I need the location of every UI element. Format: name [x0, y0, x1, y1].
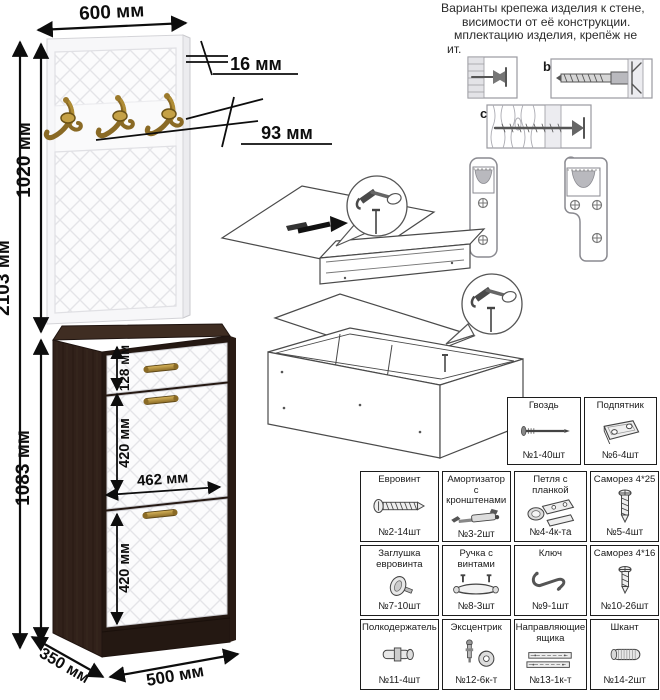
wall-mount-note: Варианты крепежа изделия к стене, висимо… [441, 2, 660, 56]
dim-front-width: 462 мм [136, 469, 188, 490]
hardware-table-top: Гвоздь №1-40шт Подпятник №6-4шт [507, 397, 657, 465]
part-name: Ключ [539, 549, 562, 560]
dim-flap-lower: 420 мм [117, 543, 133, 593]
part-cell-hinge: Петля с планкой №4-4к-та [514, 471, 588, 542]
nail-icon [516, 419, 572, 443]
part-name: Саморез 4*25 [594, 475, 656, 486]
part-qty: №6-4шт [602, 450, 639, 461]
dim-width-top: 600 мм [79, 0, 145, 24]
wall-fixing-variants: b c [468, 57, 652, 148]
part-name: Шкант [610, 623, 638, 634]
part-cell-screw-4x25: Саморез 4*25 №5-4шт [590, 471, 659, 542]
part-name: Ручка с винтами [444, 549, 509, 570]
part-name: Гвоздь [529, 401, 559, 412]
part-name: Подпятник [597, 401, 644, 412]
part-qty: №13-1к-т [529, 675, 571, 686]
dim-hook-offset: 93 мм [261, 123, 313, 143]
screw-4x25-icon [610, 489, 640, 523]
part-name: Саморез 4*16 [594, 549, 656, 560]
part-cell-cap: Заглушка евровинта №7-10шт [360, 545, 439, 616]
hinge-icon [521, 497, 579, 527]
part-name: Евровинт [378, 475, 420, 486]
dim-flap-upper: 420 мм [117, 418, 133, 468]
part-name: Эксцентрик [451, 623, 502, 634]
part-qty: №5-4шт [606, 527, 643, 538]
variant-c-label: c [480, 106, 487, 121]
cam-lock-icon [449, 638, 503, 670]
note-line: мплектацию изделия, крепёж не [441, 29, 660, 43]
gas-lift-icon [447, 507, 505, 529]
drawer-slides-icon [521, 648, 579, 672]
part-qty: №11-4шт [379, 675, 421, 686]
note-line: Варианты крепежа изделия к стене, [441, 2, 660, 16]
note-line: ит. [441, 43, 660, 57]
part-qty: №3-2шт [458, 529, 495, 540]
dim-total-height: 2103 мм [0, 240, 14, 316]
dim-cabinet-width: 500 мм [145, 661, 206, 690]
dim-panel-height: 1020 мм [14, 122, 35, 198]
hardware-table-main: Евровинт №2-14шт Амортизатор с кронштена… [360, 471, 659, 690]
part-cell-cam-lock: Эксцентрик №12-6к-т [442, 619, 511, 690]
euroscrew-icon [370, 493, 428, 519]
part-qty: №7-10шт [378, 601, 420, 612]
part-cell-handle: Ручка с винтами №8-3шт [442, 545, 511, 616]
part-qty: №4-4к-та [529, 527, 571, 538]
part-name: Петля с планкой [516, 475, 586, 496]
part-name: Направляющие ящика [516, 623, 586, 644]
glide-icon [592, 418, 648, 444]
part-name: Амортизатор с кронштенами [444, 475, 509, 507]
part-qty: №1-40шт [523, 450, 565, 461]
note-line: висимости от её конструкции. [441, 16, 660, 30]
part-cell-gas-lift: Амортизатор с кронштенами №3-2шт [442, 471, 511, 542]
part-cell-dowel: Шкант №14-2шт [590, 619, 659, 690]
variant-b-label: b [543, 59, 551, 74]
part-cell-glide: Подпятник №6-4шт [584, 397, 658, 465]
part-qty: №8-3шт [458, 601, 495, 612]
part-cell-key: Ключ №9-1шт [514, 545, 588, 616]
dim-cabinet-height: 1083 мм [13, 430, 34, 506]
part-qty: №12-6к-т [455, 675, 497, 686]
part-cell-nail: Гвоздь №1-40шт [507, 397, 581, 465]
part-cell-shelf-support: Полкодержатель №11-4шт [360, 619, 439, 690]
wall-panel [46, 35, 190, 324]
screw-4x16-icon [610, 565, 640, 595]
part-cell-screw-4x16: Саморез 4*16 №10-26шт [590, 545, 659, 616]
part-name: Полкодержатель [362, 623, 437, 634]
key-icon [523, 566, 577, 594]
part-qty: №9-1шт [532, 601, 569, 612]
part-qty: №10-26шт [601, 601, 649, 612]
part-cell-drawer-slides: Направляющие ящика №13-1к-т [514, 619, 588, 690]
hanging-brackets [470, 157, 607, 261]
dim-drawer-front: 128 мм [117, 345, 132, 391]
hammer-inset-2 [446, 274, 522, 344]
shelf-support-icon [372, 641, 426, 667]
shoe-cabinet [53, 324, 236, 657]
part-cell-euroscrew: Евровинт №2-14шт [360, 471, 439, 542]
part-name: Заглушка евровинта [362, 549, 437, 570]
part-qty: №14-2шт [603, 675, 645, 686]
dowel-icon [598, 641, 652, 667]
handle-icon [447, 572, 505, 600]
dim-panel-thickness: 16 мм [230, 54, 282, 74]
assembly-sheet: 600 мм 16 мм 93 мм 2103 мм 1020 мм 1083 … [0, 0, 660, 700]
cap-icon [374, 574, 424, 598]
part-qty: №2-14шт [378, 527, 420, 538]
